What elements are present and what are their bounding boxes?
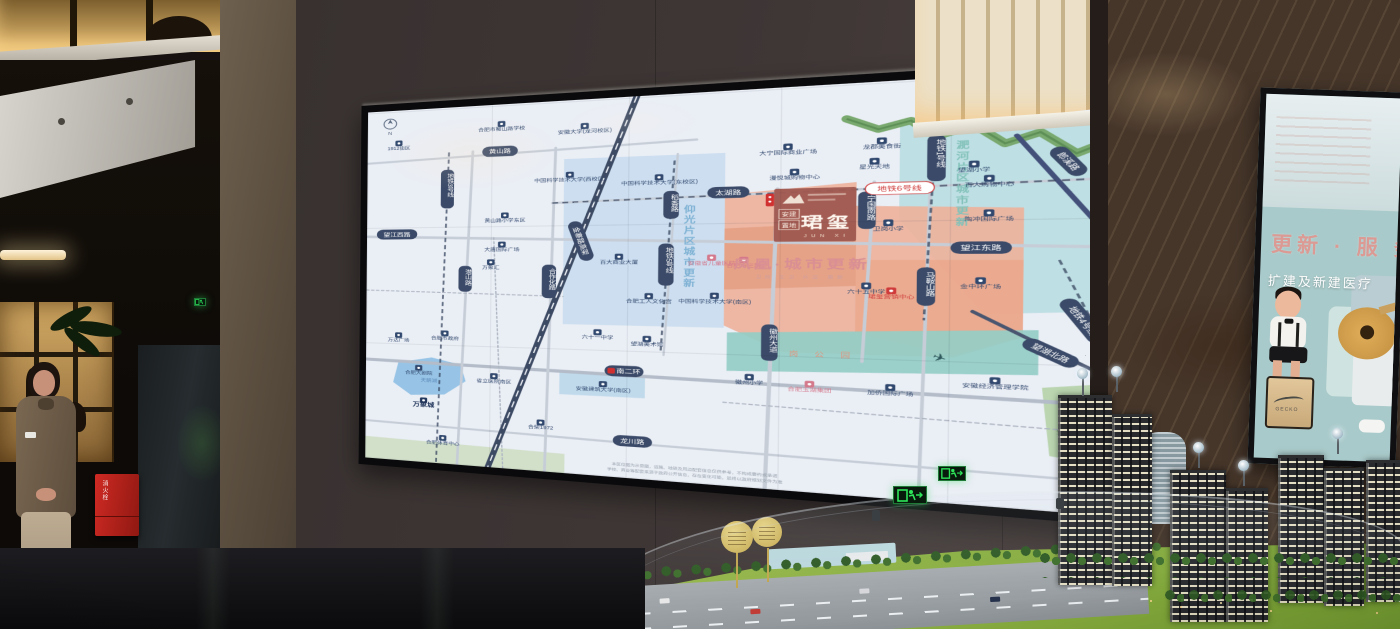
exit-sign — [893, 486, 927, 504]
hostess-face — [33, 370, 55, 396]
svg-text:地铁1号线: 地铁1号线 — [934, 138, 946, 168]
glass-clamp — [1056, 498, 1064, 509]
cajon-logo-text: GECKO — [1275, 406, 1298, 413]
marker-ball — [1193, 442, 1204, 453]
exit-sign — [194, 298, 206, 306]
ad-faint-text-lines — [1274, 116, 1371, 185]
renewal-area-subtitle: 卫岗 王卫 片区 更新 — [755, 273, 846, 280]
marker-stick — [1198, 452, 1200, 468]
ad-subtitle: 扩建及新建医疗 — [1268, 270, 1374, 293]
road-badge: 望江东路 — [951, 241, 1012, 254]
sales-center-photo: 消火栓 仰光片区城市更新淝河片区城市更新骆 岗 公 园✈黄山路望江西路望江东路太… — [0, 0, 1400, 629]
cajon-drum: GECKO — [1265, 376, 1315, 430]
road-badge: 南二环 — [604, 365, 643, 377]
svg-text:万象城: 万象城 — [412, 400, 436, 409]
project-logo-box: 安建置地珺玺JUN XI — [774, 187, 857, 242]
toddler-bowtie — [1284, 319, 1293, 324]
marker-stick — [1337, 438, 1339, 454]
screen-glare — [554, 92, 710, 153]
exit-sign-icon — [897, 489, 923, 502]
svg-text:合作化路: 合作化路 — [547, 267, 556, 291]
svg-text:地铁5号线: 地铁5号线 — [663, 246, 673, 273]
svg-text:百大商业大厦: 百大商业大厦 — [600, 259, 639, 266]
marker-ball — [1238, 460, 1249, 471]
road-badge: 合作化路 — [542, 265, 556, 299]
toddler-head — [1275, 290, 1302, 319]
marker-stick — [1243, 470, 1245, 486]
road-badge: 地铁5号线 — [658, 244, 674, 286]
floor-reflection — [196, 548, 230, 629]
project-title: 珺玺 — [801, 212, 853, 232]
marker-stick — [1082, 378, 1084, 396]
hostess-name-badge — [25, 432, 36, 438]
road-badge: 太湖路 — [707, 186, 749, 198]
zone-title: 仰光片区城市更新 — [682, 204, 697, 290]
hostess-hands — [36, 488, 56, 501]
exit-sign — [938, 466, 966, 481]
panel-gap — [70, 0, 77, 52]
road-badge: 马鞍山路 — [917, 267, 936, 305]
fire-hydrant-cabinet: 消火栓 — [95, 474, 139, 536]
svg-text:宁国南路: 宁国南路 — [864, 194, 875, 221]
fire-cabinet-label: 消火栓 — [100, 480, 109, 501]
road-badge: 宁国南路 — [858, 191, 876, 229]
exit-sign-icon — [941, 468, 963, 479]
screen-glare — [379, 108, 568, 195]
ad-title: 更新 · 服 务 — [1271, 228, 1400, 263]
floor-reflection — [420, 548, 454, 629]
marker-stick — [1116, 376, 1118, 392]
guitar-soundhole — [1360, 325, 1374, 339]
pendant-light — [0, 250, 66, 260]
svg-text:万象汇: 万象汇 — [482, 264, 500, 271]
road-badge: 望江西路 — [377, 229, 417, 239]
road-badge: 徽州大道 — [761, 324, 778, 361]
project-subtitle: JUN XI — [804, 232, 850, 238]
hostess-collar — [38, 398, 54, 410]
glossy-floor — [0, 548, 645, 629]
svg-text:稻香路: 稻香路 — [669, 194, 679, 214]
guitarist-shoe — [1359, 419, 1385, 433]
svg-text:马鞍山路: 马鞍山路 — [923, 271, 935, 299]
svg-text:潜山路: 潜山路 — [463, 269, 471, 287]
marker-ball — [1077, 368, 1088, 379]
downlight — [126, 98, 133, 105]
svg-text:望江西路: 望江西路 — [383, 231, 410, 238]
toddler-leg — [1273, 360, 1283, 376]
svg-text:徽州大道: 徽州大道 — [767, 327, 778, 353]
renewal-area-title: 凤凰·城市更新 — [734, 257, 871, 272]
toddler-leg — [1291, 361, 1301, 377]
cabinet-seam — [95, 516, 139, 517]
alcove-ceiling — [0, 60, 212, 210]
exit-sign-icon — [195, 299, 205, 305]
vertical-ad-screen: GECKO 更新 · 服 务 扩建及新建医疗 — [1247, 88, 1400, 469]
road-badge: 地铁1号线 — [927, 135, 946, 182]
project-marker — [766, 194, 774, 207]
glass-clamp — [872, 510, 880, 521]
road-badge: 潜山路 — [458, 266, 472, 292]
downlight — [58, 118, 65, 125]
marker-ball — [1111, 366, 1122, 377]
road-badge: 稻香路 — [663, 191, 679, 219]
marker-ball — [1332, 428, 1343, 439]
road-badge: 地铁6号线 — [865, 181, 934, 195]
